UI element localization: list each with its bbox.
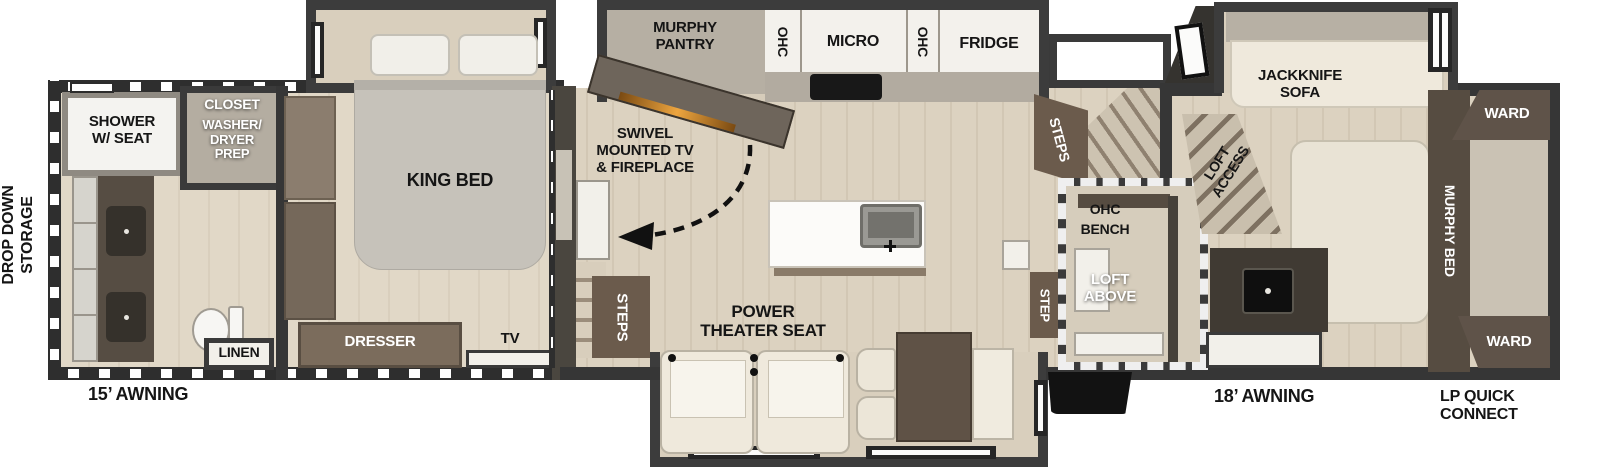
cupholder-4 <box>836 354 844 362</box>
bedroom-window-left <box>311 22 324 78</box>
rv-floorplan: SHOWER W/ SEAT CLOSET WASHER/ DRYER PREP… <box>0 0 1600 469</box>
king-bed-label: KING BED <box>385 170 515 190</box>
murphy-bed-label: MURPHY BED <box>1441 166 1457 296</box>
cabinet-divider-3 <box>938 10 940 72</box>
bedroom-wardrobe-lower <box>284 202 336 320</box>
bedroom-tv-label: TV <box>490 331 530 348</box>
dinette-chair-2 <box>856 396 896 440</box>
theater-seat-left <box>660 350 754 454</box>
sofa-back <box>1226 12 1448 42</box>
ohc-right-label: OHC <box>914 20 930 64</box>
stairs-front-wall <box>1160 88 1172 184</box>
cabinet-divider-1 <box>800 10 802 72</box>
bench-label: BENCH <box>1070 222 1140 238</box>
king-bed-foot-line <box>354 80 546 90</box>
linen-label: LINEN <box>208 345 270 361</box>
loft-room-inner-wall <box>1168 196 1178 362</box>
cupholder-3 <box>750 368 758 376</box>
kitchen-counter <box>765 72 1039 102</box>
bar-sink-drain <box>1265 288 1271 294</box>
bathroom-window <box>70 82 114 93</box>
cabinet-divider-2 <box>906 10 908 72</box>
swivel-arrow <box>600 130 780 255</box>
ward-top-label: WARD <box>1472 106 1542 123</box>
theater-slide-window-side <box>1034 380 1047 436</box>
ohc-bench-ohc-label: OHC <box>1078 202 1132 218</box>
step-side-cabinet <box>1002 240 1030 270</box>
front-right-window <box>1428 8 1452 72</box>
step-label: STEP <box>1037 280 1052 330</box>
ohc-left-label: OHC <box>774 20 790 64</box>
entry-step <box>1048 372 1132 414</box>
murphy-bed-face <box>1470 134 1548 320</box>
theater-seat-right <box>756 350 850 454</box>
awning-front-label: 18’ AWNING <box>1214 386 1344 406</box>
rear-left-wall <box>48 80 61 380</box>
front-top-wall-left <box>1160 83 1222 96</box>
king-bed-pillow-right <box>458 34 538 76</box>
dinette-bench <box>972 348 1014 440</box>
murphy-pantry-label: MURPHY PANTRY <box>620 20 750 54</box>
cupholder-2 <box>750 354 758 362</box>
rear-bottom-wall <box>48 367 564 380</box>
drop-down-storage-label: DROP DOWN STORAGE <box>0 175 39 295</box>
theater-slide-window-right <box>866 446 996 459</box>
loft-room-cabinet <box>1074 332 1164 356</box>
vanity-sink-2-drain <box>124 315 129 320</box>
dinette-table <box>896 332 972 442</box>
bedroom-slide-dash-line <box>549 90 555 368</box>
vanity-sink-1-drain <box>124 229 129 234</box>
cupholder-1 <box>668 354 676 362</box>
vanity-mirror-cabinet <box>72 176 98 362</box>
bedroom-wardrobe-upper <box>284 96 336 200</box>
stair-landing-window <box>1049 34 1171 88</box>
washer-dryer-label: WASHER/ DRYER PREP <box>186 118 278 162</box>
bedroom-steps-label: STEPS <box>613 282 630 352</box>
awning-rear-label: 15’ AWNING <box>88 384 218 404</box>
fridge-label: FRIDGE <box>946 35 1032 53</box>
island-faucet-stem <box>889 240 892 252</box>
closet-label: CLOSET <box>186 97 278 113</box>
ward-bottom-label: WARD <box>1474 334 1544 351</box>
shower-label: SHOWER W/ SEAT <box>70 114 174 148</box>
power-theater-seat-label: POWER THEATER SEAT <box>668 302 858 340</box>
micro-label: MICRO <box>813 33 893 51</box>
island-sink-basin <box>868 212 914 238</box>
cooktop <box>810 74 882 100</box>
kitchen-tall-cabinet <box>576 180 610 260</box>
dresser-label: DRESSER <box>312 334 448 351</box>
dinette-chair-1 <box>856 348 896 392</box>
jackknife-sofa-label: JACKKNIFE SOFA <box>1238 68 1362 102</box>
loft-above-label: LOFT ABOVE <box>1072 272 1148 306</box>
lp-quick-connect-label: LP QUICK CONNECT <box>1440 388 1536 424</box>
tv-cabinet <box>466 350 552 368</box>
king-bed-pillow-left <box>370 34 450 76</box>
bar-cabinet <box>1206 332 1322 368</box>
bottom-wall-mid <box>560 367 660 380</box>
